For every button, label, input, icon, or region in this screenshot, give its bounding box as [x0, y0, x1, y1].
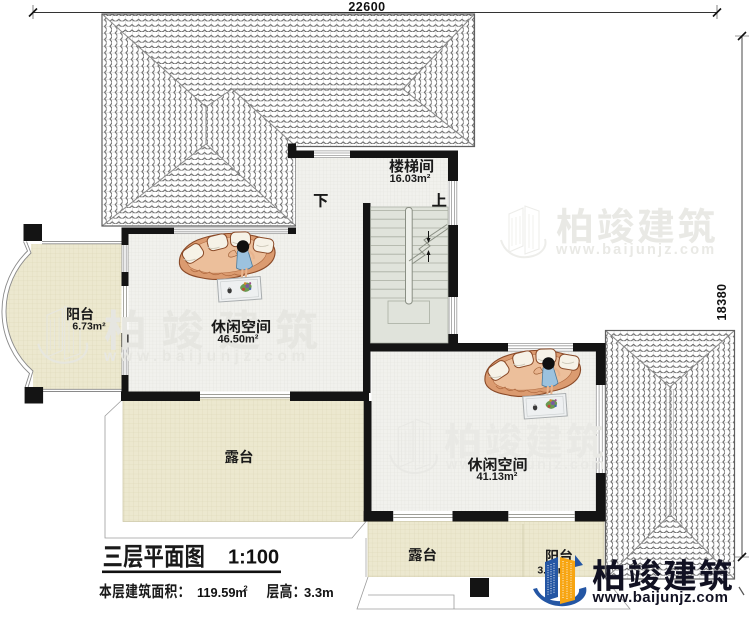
- svg-text:www.baijunjz.com: www.baijunjz.com: [103, 348, 310, 365]
- svg-text:1:100: 1:100: [228, 547, 279, 569]
- svg-text:16.03m²: 16.03m²: [390, 173, 431, 185]
- svg-text:41.13m²: 41.13m²: [477, 471, 518, 483]
- svg-text:2: 2: [244, 584, 248, 593]
- svg-text:18380: 18380: [715, 283, 729, 320]
- svg-text:3.3m: 3.3m: [304, 585, 334, 600]
- svg-text:46.50m²: 46.50m²: [218, 334, 259, 346]
- svg-text:www.baijunjz.com: www.baijunjz.com: [555, 242, 716, 258]
- svg-text:22600: 22600: [348, 0, 385, 14]
- svg-text:119.59m: 119.59m: [197, 585, 247, 600]
- svg-text:www.baijunjz.com: www.baijunjz.com: [592, 589, 729, 606]
- svg-text:6.73m²: 6.73m²: [72, 321, 106, 333]
